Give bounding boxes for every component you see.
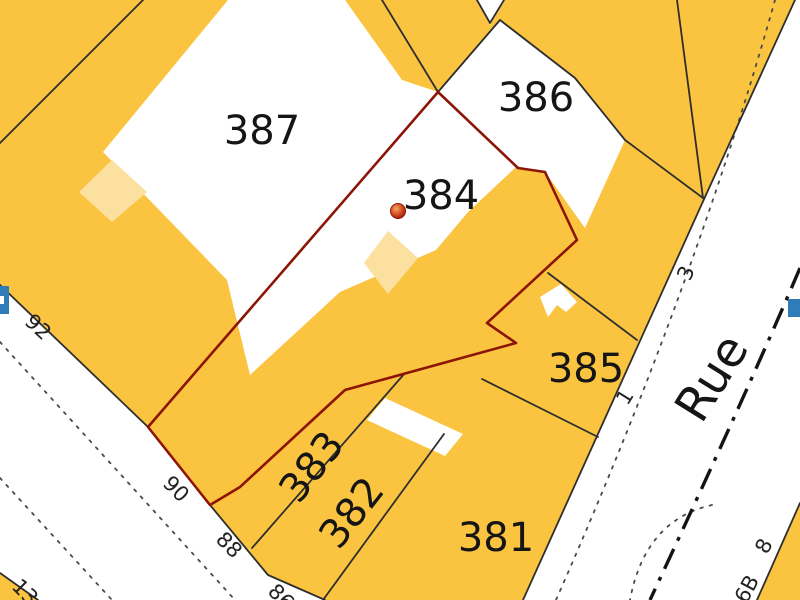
blue-symbol-left-notch: [0, 296, 4, 304]
parcel-label-384: 384: [403, 173, 479, 219]
parcel-label-387: 387: [224, 108, 300, 154]
blue-symbol-right: [788, 299, 800, 317]
map-canvas[interactable]: 387 386 384 385 383 382 381 92 90 88 86 …: [0, 0, 800, 600]
parcel-label-386: 386: [498, 75, 574, 121]
cadastral-map-svg[interactable]: 387 386 384 385 383 382 381 92 90 88 86 …: [0, 0, 800, 600]
parcel-label-385: 385: [548, 346, 624, 392]
parcel-label-381: 381: [458, 515, 534, 561]
